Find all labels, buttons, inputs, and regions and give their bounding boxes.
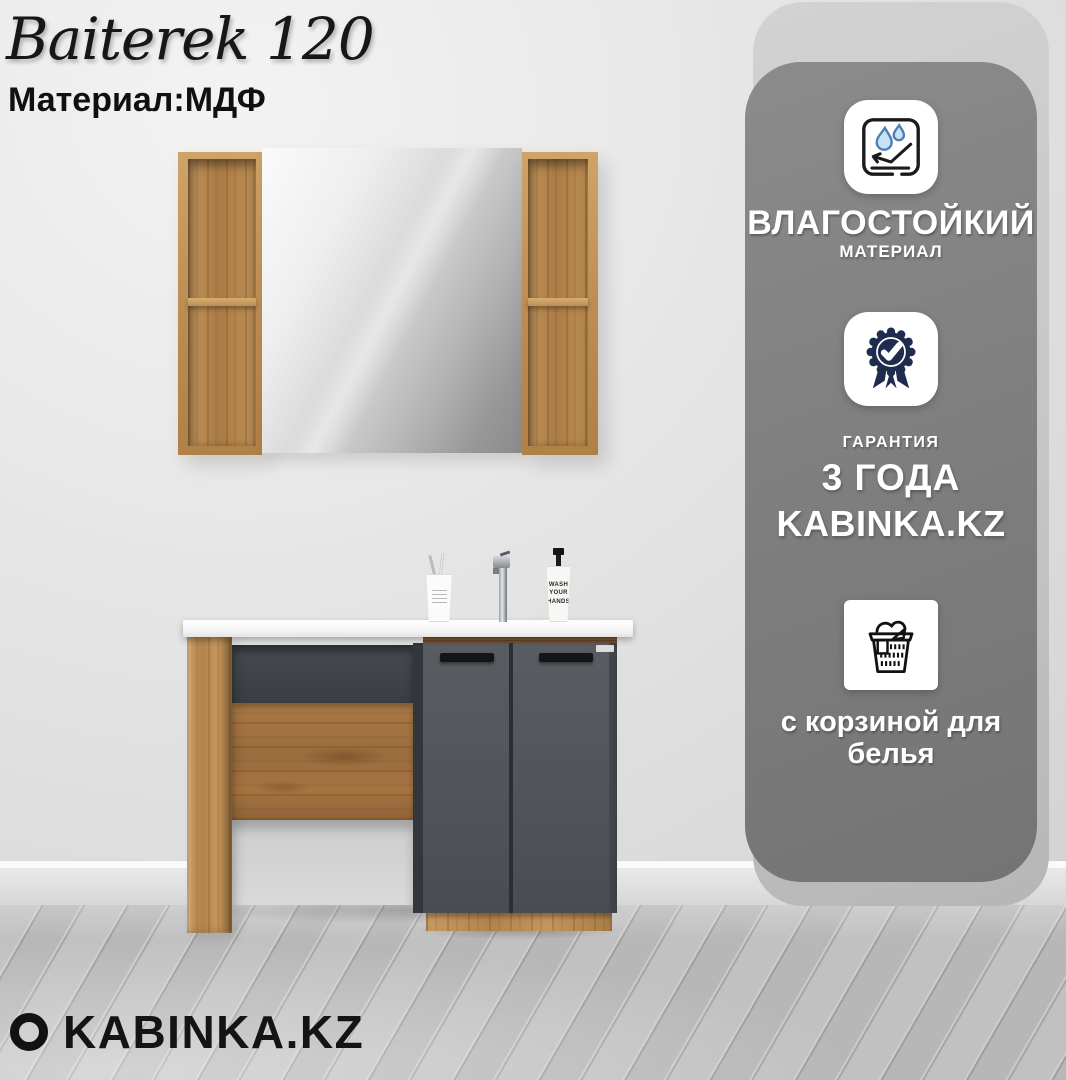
cabinet-plinth (426, 913, 612, 931)
laundry-text: с корзиной для белья (765, 706, 1017, 771)
soap-text-line: WASH (549, 582, 568, 589)
faucet-body (499, 566, 507, 622)
warranty-brand: KABINKA.KZ (777, 504, 1006, 544)
product-material: Материал:МДФ (8, 82, 266, 119)
warranty-tile (844, 312, 938, 406)
cabinet-door-left (423, 643, 509, 913)
soap-text-line: HANDS (547, 599, 570, 606)
laundry-tile (844, 600, 938, 690)
vanity-open-niche (232, 820, 413, 905)
shelf-unit-right (522, 152, 598, 455)
countertop-with-sink (183, 620, 633, 637)
cabinet-side-face (413, 643, 423, 913)
soap-dispenser: WASH YOUR HANDS (543, 548, 574, 622)
vanity-back-panel-wood (232, 703, 413, 820)
shelf-board-right (528, 298, 588, 306)
feature-title-moisture: ВЛАГОСТОЙКИЙ (747, 205, 1035, 241)
shelf-unit-left (178, 152, 262, 455)
soap-pump-stem (556, 555, 561, 566)
soap-pump (553, 548, 564, 555)
toothbrush-cup (425, 574, 453, 622)
shelf-board-left (188, 298, 256, 306)
product-card: WASH YOUR HANDS ВЛАГОСТОЙКИЙ МАТЕРИАЛ (0, 0, 1066, 1080)
soap-bottle: WASH YOUR HANDS (543, 566, 574, 622)
page-title: Baiterek 120 (6, 6, 374, 73)
door-handle-right (539, 653, 593, 662)
laundry-basket-icon (856, 610, 926, 680)
door-handle-left (440, 653, 494, 662)
feature-subtitle-material: МАТЕРИАЛ (839, 243, 942, 262)
brand-logo-text: KABINKA.KZ (63, 1009, 364, 1055)
warranty-label: ГАРАНТИЯ (843, 434, 940, 452)
cabinet-right-edge (609, 643, 617, 913)
water-resistant-tile (844, 100, 938, 194)
faucet-spout (493, 568, 499, 574)
soap-text-line: YOUR (549, 590, 568, 597)
cup-print (432, 589, 447, 603)
vanity-side-panel (187, 637, 232, 933)
cabinet-door-right (513, 643, 609, 913)
cabinet-brand-sticker (596, 645, 614, 652)
warranty-badge-icon (856, 324, 926, 394)
logo-ring-icon (10, 1013, 48, 1051)
features-panel: ВЛАГОСТОЙКИЙ МАТЕРИАЛ (745, 62, 1037, 882)
warranty-value: 3 ГОДА (822, 459, 961, 498)
vanity-back-panel-dark (232, 645, 413, 703)
faucet (487, 556, 517, 622)
brand-logo: KABINKA.KZ (10, 1009, 364, 1055)
mirror (262, 148, 522, 453)
faucet-head (493, 556, 510, 568)
water-drops-icon (857, 113, 925, 181)
